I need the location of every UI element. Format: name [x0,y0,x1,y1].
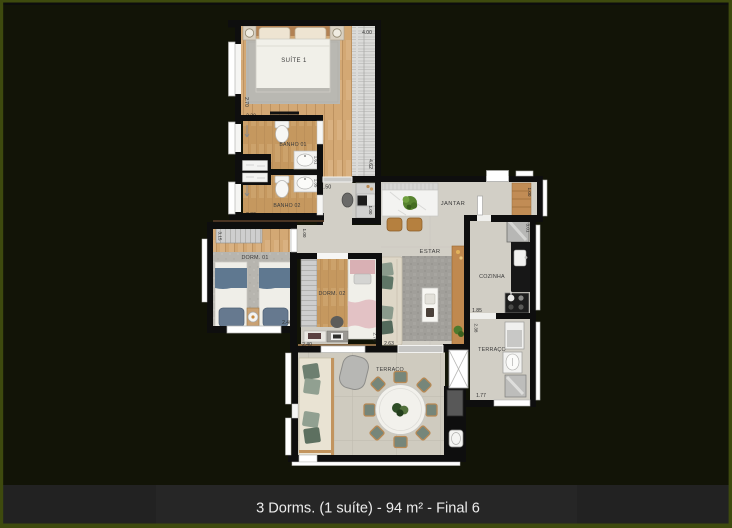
svg-text:4.00: 4.00 [362,30,372,36]
svg-text:SUÍTE 1: SUÍTE 1 [281,57,307,64]
svg-text:ESTAR: ESTAR [420,249,441,255]
svg-text:BANHO 02: BANHO 02 [273,203,300,209]
svg-text:2.38: 2.38 [474,324,479,333]
svg-text:TERRAÇO: TERRAÇO [478,347,506,353]
svg-text:1.77: 1.77 [476,393,486,399]
svg-text:2.70: 2.70 [243,97,249,107]
svg-text:JANTAR: JANTAR [441,201,466,207]
svg-text:3.01: 3.01 [526,224,531,233]
svg-text:1.00: 1.00 [302,229,307,238]
svg-text:BANHO 01: BANHO 01 [279,142,306,148]
svg-text:1.00: 1.00 [527,188,532,197]
svg-text:DORM. 01: DORM. 01 [241,255,268,261]
svg-text:3.15: 3.15 [218,232,223,241]
svg-text:1.00: 1.00 [368,206,373,215]
svg-text:4.62: 4.62 [367,159,373,169]
svg-text:DORM. 02: DORM. 02 [318,291,345,297]
svg-text:COZINHA: COZINHA [479,274,505,280]
svg-text:3 Dorms. (1 suíte) - 94 m² - F: 3 Dorms. (1 suíte) - 94 m² - Final 6 [256,501,480,517]
